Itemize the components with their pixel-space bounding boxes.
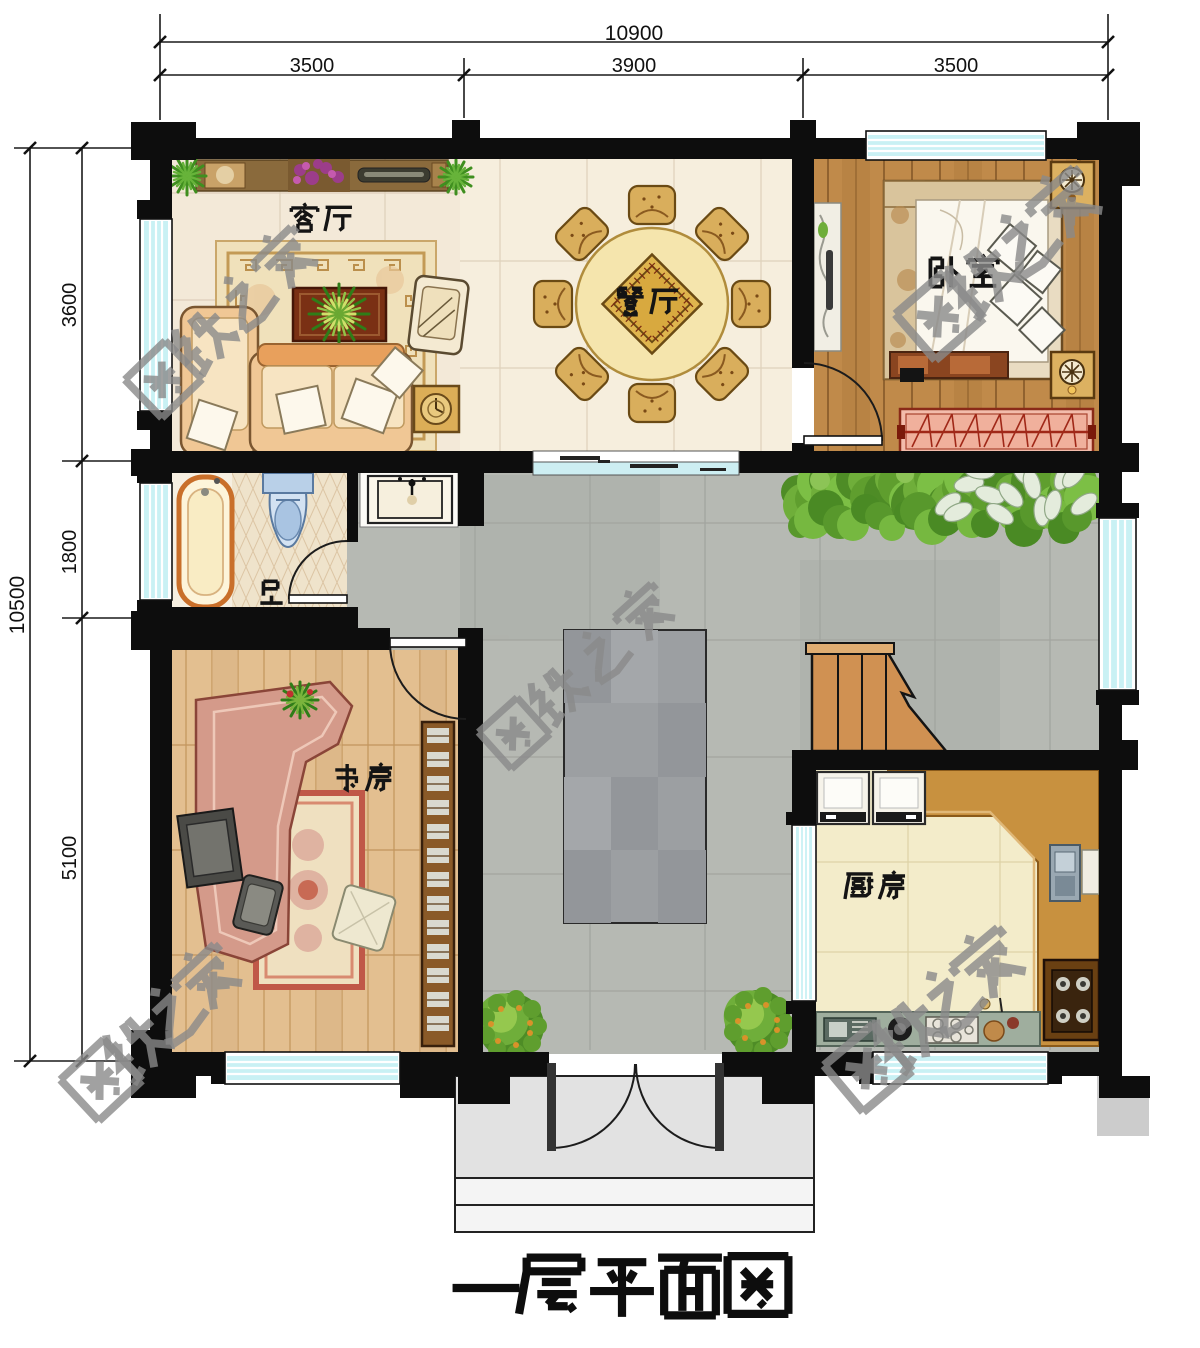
svg-text:3600: 3600: [59, 283, 81, 328]
svg-text:10900: 10900: [605, 22, 663, 45]
svg-text:3900: 3900: [612, 55, 657, 77]
svg-text:3500: 3500: [934, 55, 979, 77]
svg-text:1800: 1800: [59, 530, 81, 575]
svg-text:10500: 10500: [6, 576, 29, 634]
svg-text:5100: 5100: [59, 836, 81, 881]
svg-text:3500: 3500: [290, 55, 335, 77]
